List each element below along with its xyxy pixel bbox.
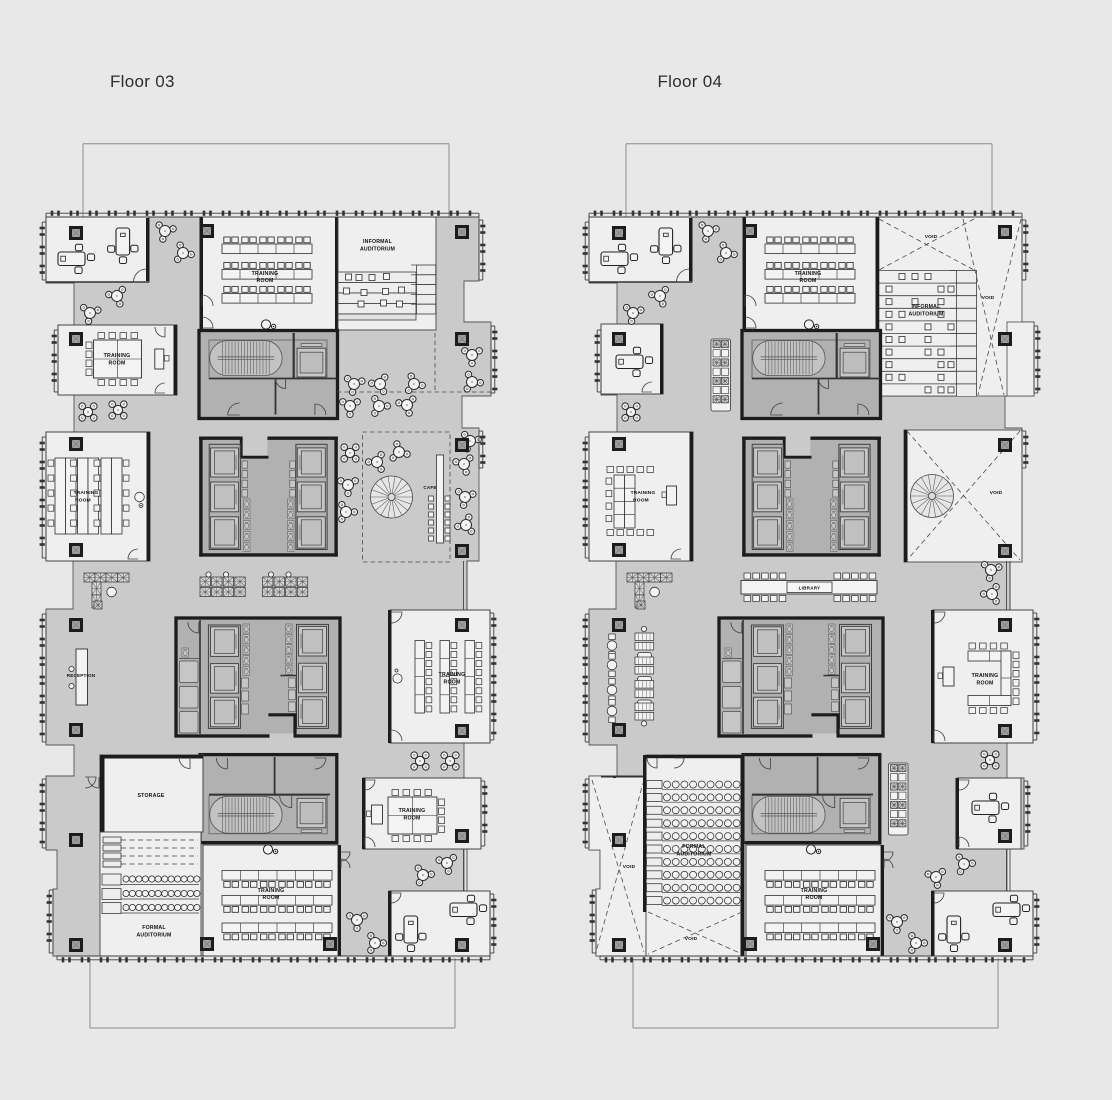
svg-text:Floor 03: Floor 03 xyxy=(110,72,175,91)
svg-text:RECEPTION: RECEPTION xyxy=(67,673,96,678)
svg-text:ROOM: ROOM xyxy=(109,361,126,367)
svg-text:ROOM: ROOM xyxy=(263,895,280,901)
svg-text:ROOM: ROOM xyxy=(75,498,91,504)
svg-text:AUDITORIUM: AUDITORIUM xyxy=(136,933,171,939)
svg-text:TRAINING: TRAINING xyxy=(252,271,279,277)
svg-text:TRAINING: TRAINING xyxy=(439,672,466,678)
svg-text:TRAINING: TRAINING xyxy=(258,888,285,894)
svg-text:ROOM: ROOM xyxy=(806,895,823,901)
svg-text:VOID: VOID xyxy=(925,234,938,240)
svg-text:ROOM: ROOM xyxy=(977,681,994,687)
svg-text:ROOM: ROOM xyxy=(800,278,817,284)
svg-text:STORAGE: STORAGE xyxy=(138,793,165,799)
svg-text:VOID: VOID xyxy=(685,936,698,942)
svg-text:INFORMAL: INFORMAL xyxy=(363,239,393,245)
svg-text:TRAINING: TRAINING xyxy=(631,490,656,496)
svg-text:TRAINING: TRAINING xyxy=(801,888,828,894)
svg-text:TRAINING: TRAINING xyxy=(399,808,426,814)
svg-text:TRAINING: TRAINING xyxy=(972,673,999,679)
svg-text:VOID: VOID xyxy=(990,490,1003,496)
svg-text:LIBRARY: LIBRARY xyxy=(799,586,821,591)
svg-text:TRAINING: TRAINING xyxy=(74,490,99,496)
svg-text:ROOM: ROOM xyxy=(404,816,421,822)
svg-text:FORMAL: FORMAL xyxy=(682,844,706,850)
svg-text:ROOM: ROOM xyxy=(633,498,649,504)
svg-text:VOID: VOID xyxy=(982,295,995,301)
svg-text:Floor 04: Floor 04 xyxy=(658,72,723,91)
svg-text:ROOM: ROOM xyxy=(444,680,461,686)
svg-text:VOID: VOID xyxy=(623,864,636,870)
svg-text:ROOM: ROOM xyxy=(257,278,274,284)
svg-text:AUDITORIUM: AUDITORIUM xyxy=(676,852,711,858)
svg-text:AUDITORIUM: AUDITORIUM xyxy=(360,247,395,253)
svg-text:CAFE: CAFE xyxy=(423,485,436,490)
svg-text:INFORMAL: INFORMAL xyxy=(912,304,942,310)
svg-text:TRAINING: TRAINING xyxy=(795,271,822,277)
svg-text:TRAINING: TRAINING xyxy=(104,353,131,359)
svg-text:AUDITORIUM: AUDITORIUM xyxy=(908,312,943,318)
svg-text:FORMAL: FORMAL xyxy=(142,925,166,931)
